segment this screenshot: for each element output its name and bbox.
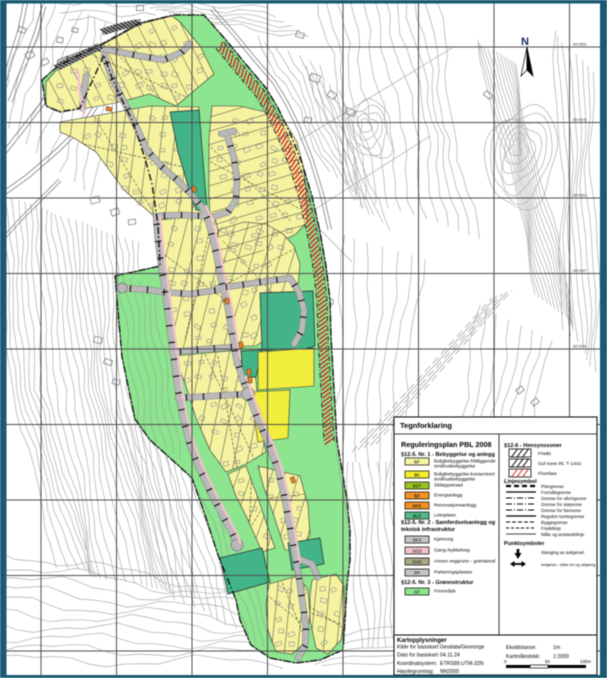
svg-text:BF: BF <box>414 459 420 464</box>
svg-text:Grense for faresone: Grense for faresone <box>541 508 582 513</box>
svg-text:50: 50 <box>545 659 550 664</box>
svg-text:Tegnforklaring: Tegnforklaring <box>400 421 452 430</box>
svg-text:Avkjørsel - både inn og utkjør: Avkjørsel - både inn og utkjøring <box>541 563 595 567</box>
svg-text:BLK: BLK <box>413 513 421 518</box>
svg-text:Måle og avstandslinje: Måle og avstandslinje <box>541 531 585 537</box>
svg-text:Geodata/Geonorge: Geodata/Geonorge <box>440 645 485 651</box>
svg-text:BRE: BRE <box>412 503 421 508</box>
svg-text:N: N <box>521 36 529 48</box>
svg-text:BE: BE <box>414 493 420 498</box>
svg-text:Boligbebyggelse-frittliggende: Boligbebyggelse-frittliggende <box>434 459 496 465</box>
svg-text:Stenging av avkjørsel: Stenging av avkjørsel <box>541 550 584 555</box>
svg-text:Frisikt: Frisikt <box>538 451 551 457</box>
svg-text:ETRS89.UTM-32N: ETRS89.UTM-32N <box>440 661 484 667</box>
svg-text:Annen veggrunn - grøntareal: Annen veggrunn - grøntareal <box>434 559 495 565</box>
svg-text:Energianlegg: Energianlegg <box>434 493 463 499</box>
svg-text:Lekeplass: Lekeplass <box>434 513 456 519</box>
svg-text:GF: GF <box>414 589 420 594</box>
svg-text:Dato for basiskart:: Dato for basiskart: <box>397 653 439 659</box>
svg-text:småhusbebyggelse: småhusbebyggelse <box>434 476 476 483</box>
svg-text:6573553: 6573553 <box>573 43 587 47</box>
svg-text:teknisk infrastruktur: teknisk infrastruktur <box>401 527 456 533</box>
svg-text:SKV: SKV <box>413 537 422 542</box>
svg-text:Regulert tomtegrense: Regulert tomtegrense <box>541 514 585 519</box>
svg-text:Grense for støysone: Grense for støysone <box>541 502 582 507</box>
svg-text:Kartmålestokk:: Kartmålestokk: <box>506 653 540 660</box>
svg-text:Renovasjonsanlegg: Renovasjonsanlegg <box>434 503 476 509</box>
svg-text:NN2000: NN2000 <box>440 669 459 675</box>
svg-text:Høydegrunnlag:: Høydegrunnlag: <box>397 669 434 675</box>
svg-text:Ekvidistanse:: Ekvidistanse: <box>506 645 537 651</box>
svg-text:småhusbebyggelse: småhusbebyggelse <box>434 463 476 470</box>
svg-text:Byggegrense: Byggegrense <box>541 520 568 525</box>
svg-text:1m: 1m <box>553 645 560 651</box>
svg-text:§12-5. Nr. 3 - Grønnstruktur: §12-5. Nr. 3 - Grønnstruktur <box>401 580 474 586</box>
svg-text:Friområde: Friområde <box>434 588 456 595</box>
svg-text:6573251: 6573251 <box>573 345 587 349</box>
svg-text:Kartopplysninger: Kartopplysninger <box>397 638 447 644</box>
svg-text:SGS: SGS <box>412 548 421 553</box>
svg-text:BK: BK <box>414 472 420 477</box>
svg-text:Formålsgrense: Formålsgrense <box>541 489 572 495</box>
svg-text:Gul sone iht. T-1442: Gul sone iht. T-1442 <box>538 461 581 467</box>
svg-text:Grense for sikringsone: Grense for sikringsone <box>541 496 587 501</box>
svg-text:6573327: 6573327 <box>573 269 587 273</box>
svg-text:Parkeringsplasser: Parkeringsplasser <box>434 570 473 576</box>
svg-text:Kjøreveg: Kjøreveg <box>434 537 454 543</box>
svg-text:Boligbebyggelse-konsentrert: Boligbebyggelse-konsentrert <box>434 472 495 478</box>
svg-text:Plangrense: Plangrense <box>541 484 564 489</box>
svg-text:PP: PP <box>414 570 420 575</box>
svg-text:Gang-/sykkelveg: Gang-/sykkelveg <box>434 548 470 554</box>
svg-text:6573402: 6573402 <box>573 194 587 198</box>
svg-text:Linjesymbol: Linjesymbol <box>504 479 537 485</box>
svg-text:Kilde for basiskart:: Kilde for basiskart: <box>397 645 440 651</box>
svg-text:04.11.24: 04.11.24 <box>440 653 460 659</box>
svg-text:Skiløypetrasé: Skiløypetrasé <box>434 483 463 489</box>
svg-text:§12-5. Nr. 1 - Bebyggelse og a: §12-5. Nr. 1 - Bebyggelse og anlegg <box>401 452 495 458</box>
svg-text:Koordinatsystem:: Koordinatsystem: <box>397 661 437 667</box>
svg-text:§12-5. Nr. 2 - Samferdselsanle: §12-5. Nr. 2 - Samferdselsanlegg og <box>401 520 496 526</box>
svg-text:Punktsymboler: Punktsymboler <box>504 541 545 547</box>
svg-text:§12-6 - Hensynssoner: §12-6 - Hensynssoner <box>504 443 563 449</box>
svg-text:Frisiktlinje: Frisiktlinje <box>541 526 561 531</box>
svg-text:6573478: 6573478 <box>573 118 587 122</box>
svg-text:Flomfare: Flomfare <box>538 471 557 477</box>
svg-text:Reguleringsplan PBL 2008: Reguleringsplan PBL 2008 <box>401 440 492 449</box>
svg-text:SVG: SVG <box>412 559 422 564</box>
svg-text:1:2000: 1:2000 <box>553 654 569 660</box>
svg-text:100m: 100m <box>580 659 591 664</box>
svg-text:BST: BST <box>413 483 422 488</box>
